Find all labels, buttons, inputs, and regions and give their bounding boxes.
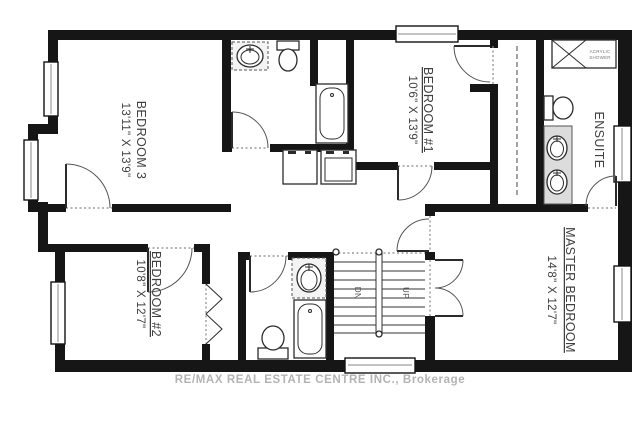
window-bedroom1-top bbox=[396, 26, 458, 42]
stairs-down-label: DN bbox=[353, 287, 362, 300]
door-master-double bbox=[430, 260, 463, 316]
window-bedroom2 bbox=[51, 282, 65, 344]
label-bedroom3: BEDROOM 3 13'11" X 13'9" bbox=[119, 101, 148, 180]
svg-text:BEDROOM 3: BEDROOM 3 bbox=[134, 101, 148, 180]
door-bedroom3 bbox=[66, 164, 112, 208]
toilet-icon bbox=[258, 326, 288, 359]
dryer-icon bbox=[321, 150, 356, 184]
shower-label-line2: SHOWER bbox=[589, 55, 611, 60]
shower-label-line1: ACRYLIC bbox=[590, 49, 611, 54]
floor-plan-page: DN UP bbox=[0, 0, 640, 424]
door-bedroom1 bbox=[398, 166, 434, 200]
label-ensuite: ENSUITE bbox=[592, 112, 606, 169]
door-master bbox=[397, 216, 430, 252]
toilet-icon bbox=[277, 41, 299, 71]
svg-text:14'8" X 12'7": 14'8" X 12'7" bbox=[545, 256, 557, 325]
sink-icon bbox=[232, 42, 268, 70]
laundry-pair bbox=[283, 150, 356, 184]
window-master bbox=[614, 266, 631, 322]
window-stairwell-bottom bbox=[345, 358, 415, 373]
label-master: MASTER BEDROOM 14'8" X 12'7" bbox=[545, 227, 577, 353]
svg-text:10'6" X 13'9": 10'6" X 13'9" bbox=[406, 76, 418, 145]
svg-text:ENSUITE: ENSUITE bbox=[592, 112, 606, 169]
toilet-icon bbox=[544, 96, 573, 120]
svg-text:13'11" X 13'9": 13'11" X 13'9" bbox=[119, 103, 131, 178]
svg-text:BEDROOM #1: BEDROOM #1 bbox=[421, 67, 435, 153]
main-bath-fixtures bbox=[232, 41, 348, 143]
hall-bath-fixtures bbox=[258, 258, 326, 359]
door-hall-bath bbox=[250, 256, 288, 292]
svg-text:10'8" X 12'7": 10'8" X 12'7" bbox=[134, 260, 146, 329]
bathtub-icon bbox=[294, 300, 326, 358]
sink-icon bbox=[292, 258, 326, 298]
door-bedroom1-closet bbox=[454, 46, 493, 84]
window-bedroom3-upper bbox=[44, 62, 58, 116]
bathtub-icon bbox=[316, 84, 348, 143]
svg-text:BEDROOM #2: BEDROOM #2 bbox=[149, 251, 163, 337]
window-ensuite bbox=[614, 126, 631, 182]
svg-text:MASTER BEDROOM: MASTER BEDROOM bbox=[563, 227, 577, 353]
label-bedroom1: BEDROOM #1 10'6" X 13'9" bbox=[406, 67, 435, 153]
walls bbox=[28, 30, 632, 372]
bifold-closet-bedroom2 bbox=[206, 284, 222, 344]
double-vanity-icon bbox=[544, 126, 572, 204]
stairs-up-label: UP bbox=[401, 287, 410, 299]
door-ensuite bbox=[586, 176, 616, 208]
shower-icon: ACRYLIC SHOWER bbox=[552, 40, 616, 68]
brokerage-watermark: RE/MAX REAL ESTATE CENTRE INC., Brokerag… bbox=[175, 374, 465, 386]
floor-plan: DN UP bbox=[0, 0, 640, 424]
door-main-bath bbox=[232, 112, 268, 148]
washer-icon bbox=[283, 150, 317, 184]
window-bedroom3-lower bbox=[24, 140, 38, 200]
staircase: DN UP bbox=[333, 249, 425, 337]
